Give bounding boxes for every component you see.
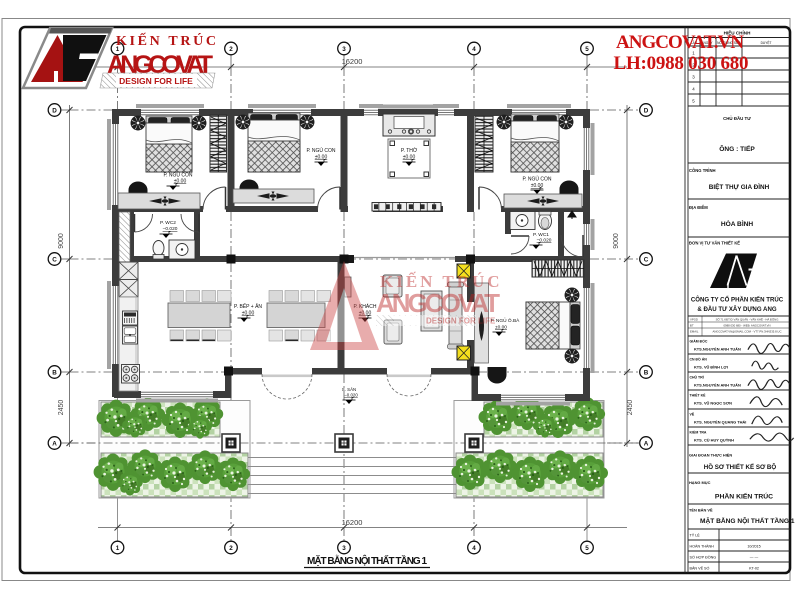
- svg-text:TÊN BẢN VẼ: TÊN BẢN VẼ: [689, 508, 713, 513]
- svg-text:KTS.NGUYỄN ANH TUẤN: KTS.NGUYỄN ANH TUẤN: [694, 347, 741, 352]
- svg-text:ANGCOVAT: ANGCOVAT: [376, 288, 500, 318]
- svg-text:VPGD: VPGD: [690, 318, 698, 322]
- svg-text:D: D: [644, 107, 649, 114]
- svg-text:DUYỆT: DUYỆT: [761, 40, 772, 45]
- svg-text:BIỆT THỰ GIA ĐÌNH: BIỆT THỰ GIA ĐÌNH: [709, 182, 770, 191]
- svg-text:D: D: [52, 107, 57, 114]
- svg-text:±0.00: ±0.00: [531, 183, 544, 189]
- svg-text:16200: 16200: [342, 57, 363, 66]
- svg-text:HỒ SƠ THIẾT KẾ SƠ BỘ: HỒ SƠ THIẾT KẾ SƠ BỘ: [704, 463, 777, 471]
- svg-text:±0.00: ±0.00: [495, 325, 507, 331]
- svg-text:CHỦ TRÌ: CHỦ TRÌ: [690, 375, 704, 380]
- svg-text:CÔNG TY CỔ PHẦN KIẾN TRÚC: CÔNG TY CỔ PHẦN KIẾN TRÚC: [691, 296, 784, 304]
- svg-text:16200: 16200: [342, 518, 363, 527]
- svg-text:KTS. VŨ NGỌC SƠN: KTS. VŨ NGỌC SƠN: [694, 401, 732, 406]
- svg-text:ANGCOVAT.VN: ANGCOVAT.VN: [616, 32, 744, 53]
- svg-text:GIAI ĐOẠN THỰC HIỆN: GIAI ĐOẠN THỰC HIỆN: [689, 453, 732, 458]
- svg-text:P. NGỦ CON: P. NGỦ CON: [163, 172, 192, 179]
- svg-text:GIÁM ĐỐC: GIÁM ĐỐC: [690, 339, 708, 344]
- svg-text:TỶ LỆ: TỶ LỆ: [690, 533, 701, 538]
- svg-text:KTS. VŨ ĐÌNH LỢI: KTS. VŨ ĐÌNH LỢI: [694, 365, 728, 370]
- svg-text:C: C: [52, 256, 57, 263]
- svg-text:C: C: [644, 256, 649, 263]
- svg-text:KTS. CÙ HUY QUỲNH: KTS. CÙ HUY QUỲNH: [694, 438, 734, 443]
- svg-text:P. WC1: P. WC1: [533, 232, 549, 238]
- svg-text:P. THỜ: P. THỜ: [401, 147, 418, 154]
- svg-text:4: 4: [472, 46, 476, 53]
- svg-text:ĐƠN VỊ TƯ VẤN THIẾT KẾ: ĐƠN VỊ TƯ VẤN THIẾT KẾ: [689, 241, 740, 246]
- svg-text:HÒA BÌNH: HÒA BÌNH: [721, 219, 754, 228]
- svg-text:P. NGỦ CON: P. NGỦ CON: [522, 176, 551, 183]
- svg-text:EMAIL: EMAIL: [690, 330, 699, 334]
- svg-text:SỐ 71 KĐT/D VĂN QUÁN - VĂN KHÊ: SỐ 71 KĐT/D VĂN QUÁN - VĂN KHÊ - HÀ ĐÔNG: [716, 317, 779, 322]
- svg-text:B: B: [644, 369, 649, 376]
- svg-text:ĐT: ĐT: [690, 324, 694, 328]
- svg-text:3: 3: [342, 46, 346, 53]
- svg-text:A: A: [644, 440, 649, 447]
- svg-text:2450: 2450: [58, 400, 65, 416]
- svg-text:KTS. NGUYỄN QUANG THÁI: KTS. NGUYỄN QUANG THÁI: [694, 420, 746, 425]
- svg-text:3: 3: [342, 545, 346, 552]
- svg-text:9000: 9000: [613, 233, 620, 249]
- svg-text:THIẾT KẾ: THIẾT KẾ: [690, 393, 707, 398]
- svg-text:CHỦ ĐẦU TƯ: CHỦ ĐẦU TƯ: [723, 116, 751, 121]
- svg-text:−0.020: −0.020: [344, 393, 358, 398]
- svg-text:−0.020: −0.020: [163, 226, 178, 232]
- svg-text:2: 2: [229, 545, 233, 552]
- svg-text:±0.00: ±0.00: [315, 155, 328, 161]
- svg-text:B: B: [52, 369, 57, 376]
- svg-text:DESIGN FOR LIFE: DESIGN FOR LIFE: [426, 317, 496, 326]
- svg-text:HẠNG MỤC: HẠNG MỤC: [689, 480, 711, 485]
- svg-text:— —: — —: [750, 556, 759, 560]
- svg-text:& ĐẦU TƯ XÂY DỰNG ANG: & ĐẦU TƯ XÂY DỰNG ANG: [697, 306, 776, 313]
- svg-text:±0.00: ±0.00: [403, 155, 416, 161]
- svg-text:KT-02: KT-02: [749, 567, 759, 571]
- svg-text:5: 5: [585, 545, 589, 552]
- svg-text:SỐ HỢP ĐỒNG: SỐ HỢP ĐỒNG: [690, 555, 717, 560]
- svg-text:CÔNG TRÌNH: CÔNG TRÌNH: [689, 168, 716, 173]
- svg-text:P. BẾP + ĂN: P. BẾP + ĂN: [234, 303, 262, 310]
- svg-text:KIỂM TRA: KIỂM TRA: [690, 430, 707, 435]
- svg-text:HOÀN THÀNH: HOÀN THÀNH: [690, 545, 715, 549]
- svg-text:VẼ: VẼ: [690, 412, 695, 417]
- svg-text:1: 1: [116, 545, 120, 552]
- svg-text:P. WC2: P. WC2: [160, 220, 176, 226]
- svg-text:A: A: [52, 440, 57, 447]
- svg-text:0988 030 680 - WEB: ANGCOVAT: 0988 030 680 - WEB: ANGCOVAT.VN: [724, 324, 771, 328]
- svg-text:10/2015: 10/2015: [747, 545, 760, 549]
- svg-text:9000: 9000: [58, 233, 65, 249]
- svg-text:P. NGỦ CON: P. NGỦ CON: [306, 147, 335, 154]
- svg-text:BẢN VẼ SỐ: BẢN VẼ SỐ: [690, 566, 710, 571]
- svg-text:CN ĐỒ ÁN: CN ĐỒ ÁN: [690, 357, 708, 362]
- svg-text:ANGCOVAT.VN@GMAIL.COM - VT7.PN: ANGCOVAT.VN@GMAIL.COM - VT7.PN.3HN335.8.…: [713, 330, 782, 334]
- svg-text:MẶT BẰNG NỘI THẤT TẦNG 1: MẶT BẰNG NỘI THẤT TẦNG 1: [307, 554, 427, 567]
- svg-text:2: 2: [229, 46, 233, 53]
- svg-text:KTS.NGUYỄN ANH TUẤN: KTS.NGUYỄN ANH TUẤN: [694, 383, 741, 388]
- svg-text:2450: 2450: [627, 400, 634, 416]
- svg-text:ĐỊA ĐIỂM: ĐỊA ĐIỂM: [689, 205, 708, 210]
- svg-text:4: 4: [472, 545, 476, 552]
- svg-text:DESIGN FOR LIFE: DESIGN FOR LIFE: [119, 76, 193, 86]
- svg-text:S. SÂN: S. SÂN: [342, 387, 356, 392]
- svg-text:LH:0988 030 680: LH:0988 030 680: [614, 53, 749, 74]
- svg-text:5: 5: [585, 46, 589, 53]
